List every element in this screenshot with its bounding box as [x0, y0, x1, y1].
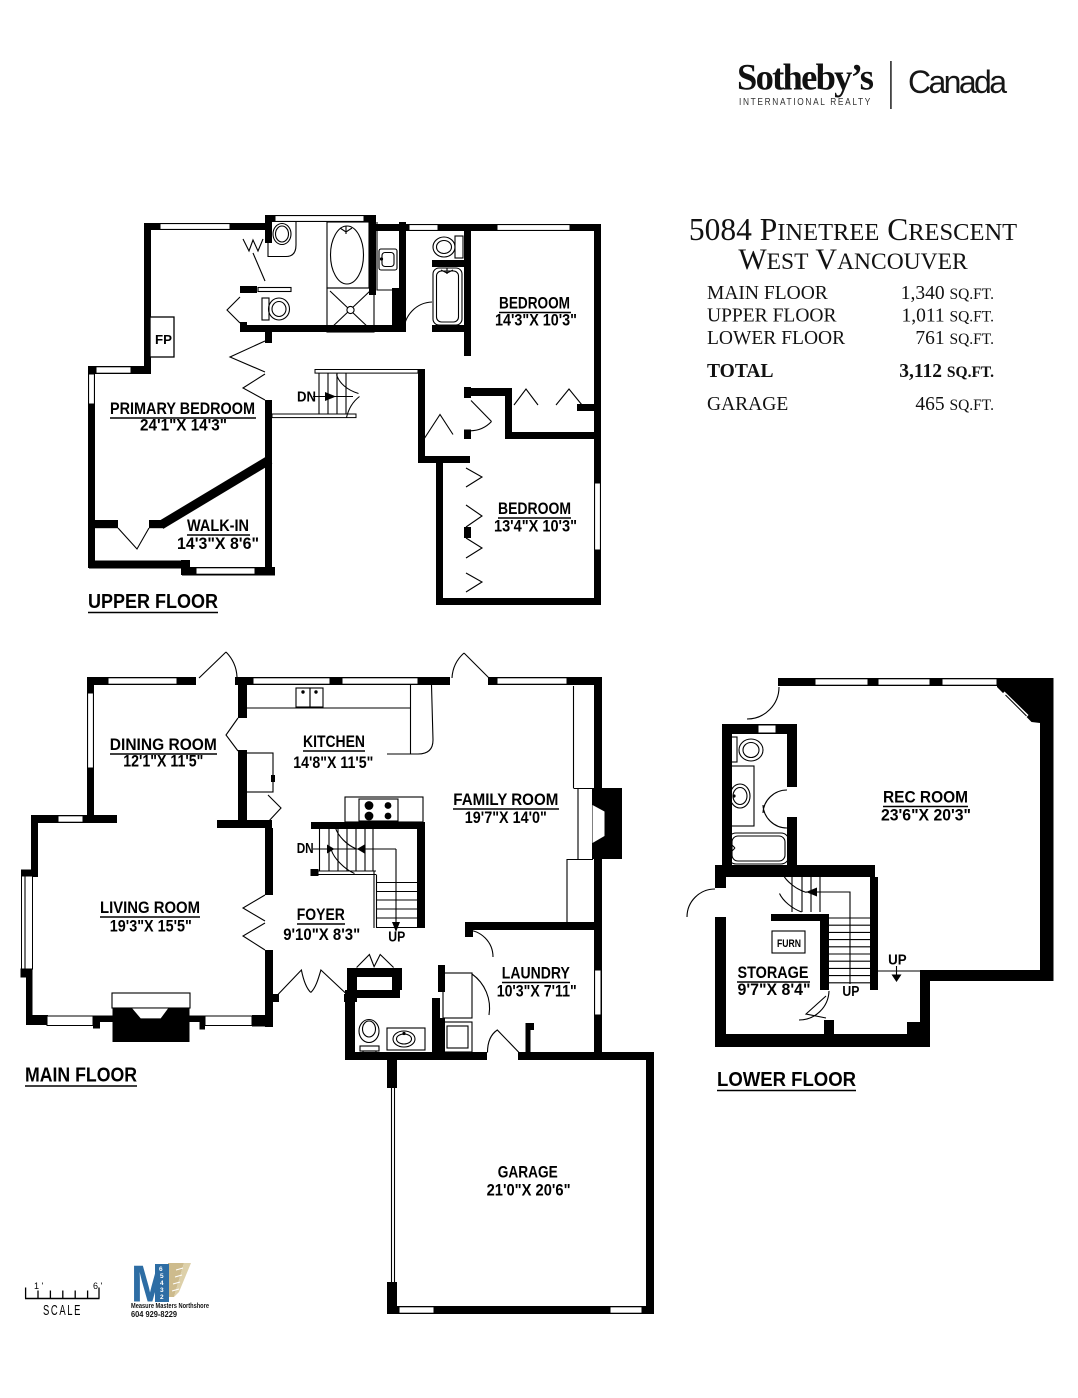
- svg-text:UP: UP: [888, 953, 907, 969]
- svg-text:INTERNATIONAL REALTY: INTERNATIONAL REALTY: [739, 97, 872, 108]
- svg-text:BEDROOM: BEDROOM: [499, 294, 570, 313]
- svg-text:REC ROOM: REC ROOM: [883, 788, 968, 807]
- svg-text:KITCHEN: KITCHEN: [303, 732, 365, 751]
- svg-text:1 ': 1 ': [34, 1281, 44, 1291]
- svg-text:MAIN FLOOR: MAIN FLOOR: [707, 283, 828, 304]
- svg-text:STORAGE: STORAGE: [738, 963, 809, 982]
- svg-text:BEDROOM: BEDROOM: [498, 499, 571, 518]
- svg-text:4: 4: [160, 1280, 164, 1287]
- svg-text:1,340 SQ.FT.: 1,340 SQ.FT.: [901, 283, 994, 304]
- svg-text:PRIMARY BEDROOM: PRIMARY BEDROOM: [110, 399, 255, 418]
- svg-text:604 929-8229: 604 929-8229: [131, 1309, 177, 1319]
- svg-text:3: 3: [160, 1287, 164, 1294]
- svg-text:1,011 SQ.FT.: 1,011 SQ.FT.: [901, 306, 994, 327]
- svg-text:5: 5: [160, 1273, 164, 1280]
- svg-text:12'1"X 11'5": 12'1"X 11'5": [123, 753, 203, 771]
- svg-text:14'3"X 10'3": 14'3"X 10'3": [495, 312, 577, 330]
- svg-text:13'4"X 10'3": 13'4"X 10'3": [494, 518, 577, 536]
- svg-text:DN: DN: [297, 841, 314, 857]
- svg-text:UP: UP: [842, 984, 859, 1000]
- svg-text:GARAGE: GARAGE: [707, 394, 788, 415]
- svg-text:LIVING ROOM: LIVING ROOM: [100, 898, 200, 917]
- svg-text:DINING ROOM: DINING ROOM: [110, 735, 217, 754]
- svg-text:LAUNDRY: LAUNDRY: [502, 964, 571, 983]
- svg-text:9'7"X 8'4": 9'7"X 8'4": [738, 981, 811, 999]
- svg-text:SCALE: SCALE: [43, 1303, 82, 1319]
- svg-text:761 SQ.FT.: 761 SQ.FT.: [915, 328, 994, 349]
- svg-text:FURN: FURN: [777, 938, 801, 950]
- svg-text:14'8"X 11'5": 14'8"X 11'5": [293, 754, 373, 772]
- svg-text:Canada: Canada: [908, 64, 1007, 100]
- svg-text:9'10"X 8'3": 9'10"X 8'3": [283, 926, 360, 944]
- svg-text:465 SQ.FT.: 465 SQ.FT.: [915, 394, 994, 415]
- svg-text:21'0"X 20'6": 21'0"X 20'6": [487, 1182, 571, 1200]
- svg-text:FOYER: FOYER: [297, 905, 345, 924]
- svg-text:2: 2: [160, 1294, 164, 1301]
- svg-text:UP: UP: [388, 930, 405, 946]
- svg-text:19'7"X 14'0": 19'7"X 14'0": [465, 809, 547, 827]
- svg-text:6: 6: [159, 1266, 163, 1273]
- svg-text:GARAGE: GARAGE: [498, 1163, 558, 1182]
- svg-text:Sotheby’s: Sotheby’s: [737, 57, 874, 98]
- svg-text:10'3"X 7'11": 10'3"X 7'11": [497, 983, 577, 1001]
- svg-text:UPPER FLOOR: UPPER FLOOR: [88, 591, 219, 613]
- svg-text:LOWER FLOOR: LOWER FLOOR: [707, 328, 845, 349]
- svg-text:MAIN FLOOR: MAIN FLOOR: [25, 1065, 137, 1087]
- svg-text:23'6"X 20'3": 23'6"X 20'3": [881, 807, 971, 825]
- svg-text:3,112 SQ.FT.: 3,112 SQ.FT.: [899, 361, 994, 382]
- svg-text:FP: FP: [155, 332, 172, 347]
- svg-text:6 ': 6 ': [93, 1281, 103, 1291]
- svg-text:DN: DN: [297, 390, 316, 406]
- svg-text:19'3"X 15'5": 19'3"X 15'5": [110, 918, 192, 936]
- svg-text:UPPER FLOOR: UPPER FLOOR: [707, 306, 837, 327]
- svg-text:14'3"X 8'6": 14'3"X 8'6": [177, 535, 259, 553]
- svg-text:FAMILY ROOM: FAMILY ROOM: [453, 790, 558, 809]
- svg-text:WALK-IN: WALK-IN: [187, 516, 249, 535]
- svg-text:LOWER FLOOR: LOWER FLOOR: [717, 1069, 857, 1091]
- svg-text:TOTAL: TOTAL: [707, 361, 773, 382]
- svg-text:24'1"X 14'3": 24'1"X 14'3": [140, 417, 227, 435]
